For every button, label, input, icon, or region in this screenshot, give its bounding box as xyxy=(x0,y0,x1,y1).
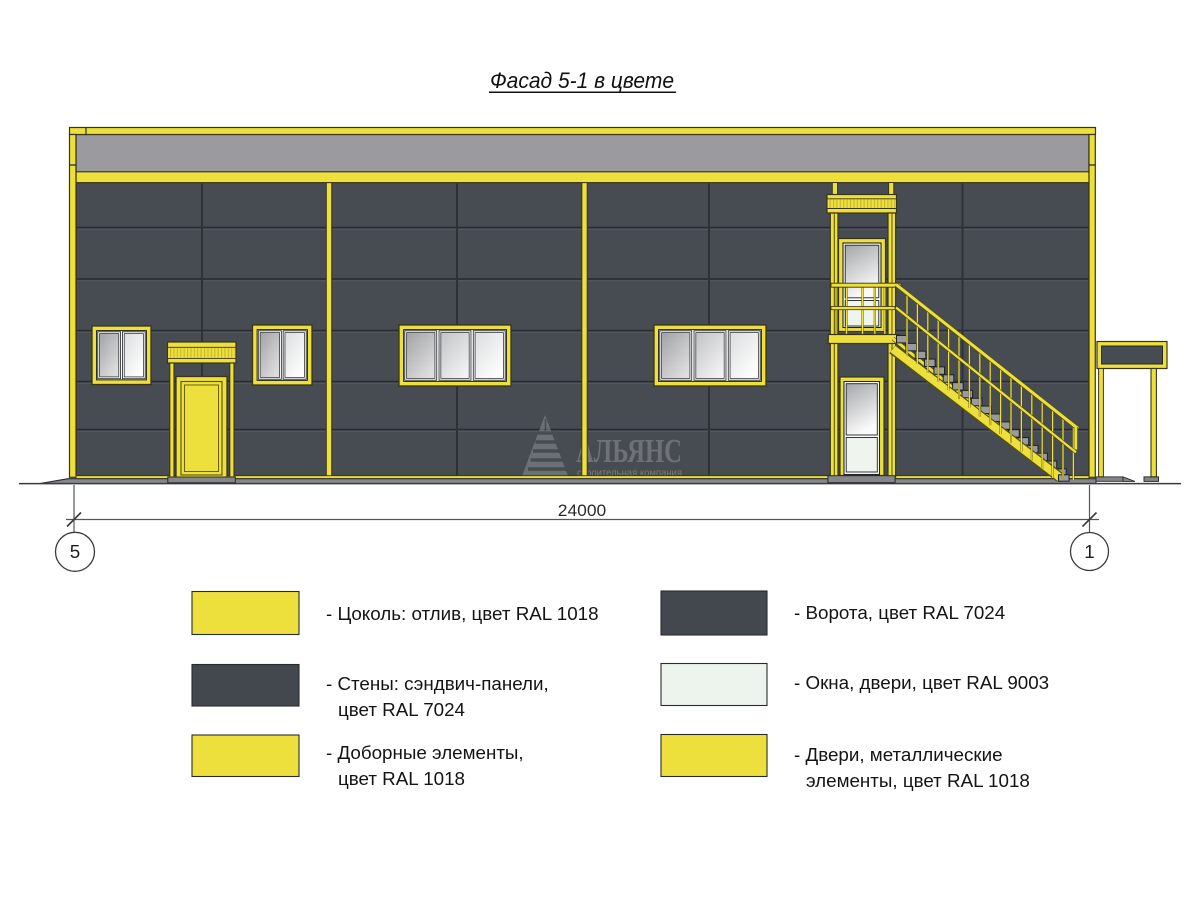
svg-text:АЛЬЯНС: АЛЬЯНС xyxy=(576,433,682,470)
svg-text:5: 5 xyxy=(70,541,80,562)
svg-text:- Доборные элементы,: - Доборные элементы, xyxy=(326,742,524,763)
svg-text:24000: 24000 xyxy=(558,501,607,520)
svg-text:цвет RAL 1018: цвет RAL 1018 xyxy=(338,768,465,789)
svg-text:Фасад 5-1 в цвете: Фасад 5-1 в цвете xyxy=(490,68,674,93)
svg-text:цвет RAL 7024: цвет RAL 7024 xyxy=(338,699,465,720)
svg-text:- Цоколь: отлив, цвет RAL 1018: - Цоколь: отлив, цвет RAL 1018 xyxy=(326,603,599,624)
svg-text:- Двери, металлические: - Двери, металлические xyxy=(794,744,1003,765)
svg-text:- Ворота, цвет RAL 7024: - Ворота, цвет RAL 7024 xyxy=(794,602,1005,623)
svg-text:- Стены: сэндвич-панели,: - Стены: сэндвич-панели, xyxy=(326,673,549,694)
svg-text:- Окна, двери, цвет RAL 9003: - Окна, двери, цвет RAL 9003 xyxy=(794,672,1049,693)
svg-text:элементы, цвет RAL 1018: элементы, цвет RAL 1018 xyxy=(806,770,1030,791)
svg-text:1: 1 xyxy=(1084,541,1094,562)
